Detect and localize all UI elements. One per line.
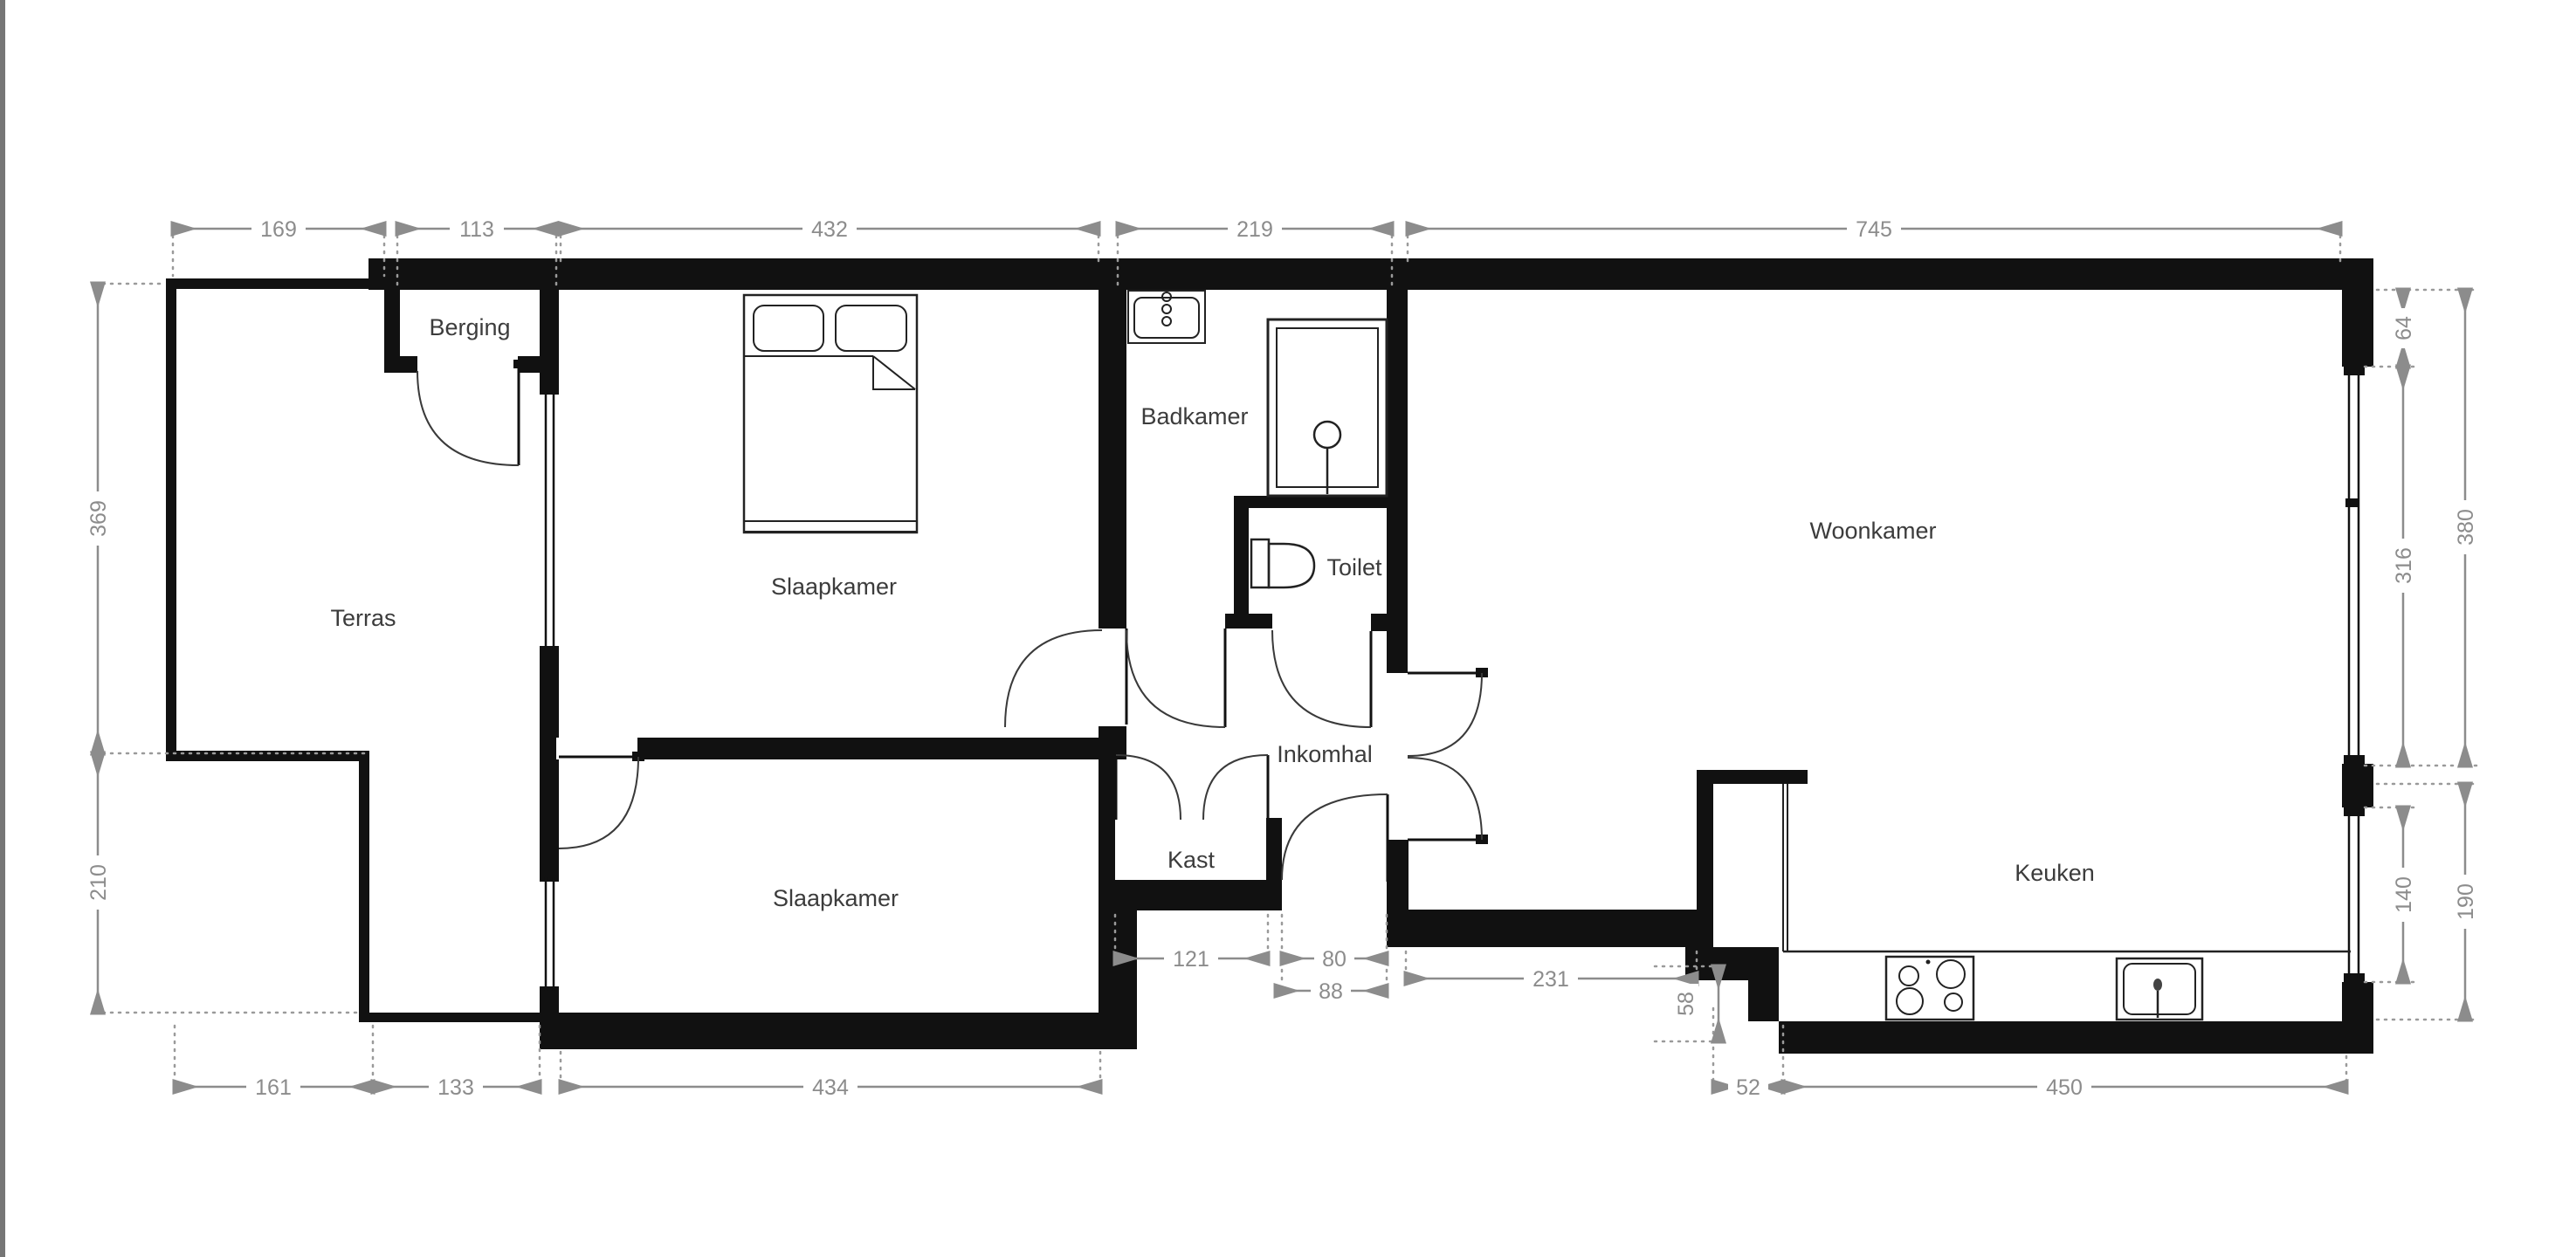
dim-berging-width: 113: [397, 216, 556, 242]
sink-tap: [2153, 979, 2162, 991]
wall: [540, 1013, 1118, 1049]
wash-basin-icon: [1128, 291, 1205, 343]
wall: [1685, 947, 1779, 980]
wall: [540, 759, 559, 873]
window-frame-cap: [540, 986, 559, 995]
wall: [400, 356, 417, 373]
kitchen-sink-icon: [2117, 958, 2202, 1020]
toilet-tank: [1251, 539, 1269, 587]
dimension-value: 745: [1856, 217, 1892, 242]
window-frame-cap: [2344, 367, 2365, 375]
bed-icon: [744, 295, 917, 532]
wall: [637, 738, 1102, 759]
window-frame-cap: [2344, 973, 2365, 982]
closet-door-swing-arc: [1203, 755, 1268, 820]
door-swing-arc: [417, 371, 519, 465]
dim-terras-height: 369: [85, 284, 111, 753]
dim-front-door-outer: 88: [1276, 978, 1387, 1004]
wall: [359, 1013, 542, 1022]
room-label-woonkamer: Woonkamer: [1809, 518, 1936, 544]
wall: [384, 290, 400, 373]
toilet-bowl: [1269, 544, 1314, 587]
window-frame-cap: [540, 646, 559, 655]
dim-keuken-window: 140: [2390, 807, 2416, 982]
dimension-value: 190: [2454, 883, 2478, 920]
burner: [1937, 960, 1965, 988]
wall: [2342, 764, 2373, 807]
wall: [166, 278, 368, 289]
wall: [1234, 508, 1249, 614]
wall: [166, 278, 176, 761]
wall: [1225, 614, 1272, 628]
wall: [1234, 496, 1408, 508]
closet-door-swing-arc: [1116, 755, 1181, 820]
dim-terras-width: 169: [173, 216, 384, 242]
dim-front-door-clear: 80: [1282, 945, 1387, 972]
pillow: [836, 306, 906, 351]
door-swing-arc: [1005, 630, 1102, 727]
dimension-value: 316: [2392, 547, 2416, 584]
cooktop-icon: [1886, 957, 1973, 1020]
wall: [1387, 258, 1408, 673]
door-swing-arc: [559, 757, 638, 848]
cooktop-knob: [1926, 960, 1931, 965]
room-label-kast: Kast: [1167, 847, 1216, 873]
wall: [1115, 880, 1268, 910]
dimension-value: 169: [260, 217, 297, 242]
door-swing-arc: [1126, 630, 1225, 727]
dimension-value: 140: [2392, 876, 2416, 913]
wall: [1697, 770, 1713, 947]
dim-bottom-left-a: 161: [175, 1074, 373, 1100]
floor-plan-drawing: 169 113 432 219 745 369: [0, 0, 2576, 1257]
dimension-value: 380: [2454, 509, 2478, 546]
dim-woonkamer-window: 316: [2390, 367, 2416, 766]
room-label-slaapkamer-top: Slaapkamer: [771, 574, 897, 600]
dim-bottom-left-b: 133: [373, 1074, 540, 1100]
dimension-value: 432: [811, 217, 848, 242]
room-label-slaapkamer-bottom: Slaapkamer: [773, 885, 899, 911]
dim-window-offset: 64: [2390, 290, 2416, 367]
dim-slaapkamer-top-width: 432: [561, 216, 1099, 242]
dimension-value: 58: [1674, 992, 1698, 1016]
wall: [1713, 770, 1808, 784]
bed-foot-line: [744, 521, 917, 532]
dim-woonkamer-width: 745: [1408, 216, 2340, 242]
blanket-fold: [744, 356, 915, 389]
window-edge-strip: [0, 0, 5, 1257]
front-door-swing-arc: [1282, 794, 1388, 880]
dimension-value: 88: [1319, 979, 1343, 1004]
shower-icon: [1268, 319, 1387, 496]
pillow: [754, 306, 823, 351]
dim-keuken-passage: 52: [1713, 1074, 1783, 1100]
wall: [540, 995, 559, 1013]
dimension-value: 434: [812, 1075, 849, 1100]
wall: [1266, 818, 1282, 910]
burner: [1899, 966, 1918, 986]
room-label-toilet: Toilet: [1326, 554, 1382, 580]
dimension-value: 161: [255, 1075, 292, 1100]
dim-kast-width: 121: [1115, 945, 1268, 972]
window-frame-cap: [540, 386, 559, 395]
wall: [1402, 910, 1713, 947]
burner: [1897, 988, 1923, 1014]
wall: [1099, 759, 1115, 1049]
wall: [540, 738, 556, 759]
wall: [1115, 910, 1137, 1049]
dimension-value: 219: [1236, 217, 1273, 242]
bed-frame: [744, 295, 917, 532]
wall: [2342, 982, 2373, 1054]
floor-plan-page: 169 113 432 219 745 369: [0, 0, 2576, 1257]
burner: [1945, 993, 1962, 1011]
dimension-value: 121: [1173, 947, 1209, 972]
dimension-value: 64: [2392, 316, 2416, 340]
wall: [1099, 290, 1126, 628]
double-door-swing-arc: [1408, 673, 1482, 756]
room-label-terras: Terras: [330, 605, 396, 631]
dimension-value: 369: [86, 500, 111, 537]
dimension-value: 52: [1736, 1075, 1760, 1100]
dimension-value: 231: [1533, 967, 1569, 992]
room-label-inkomhal: Inkomhal: [1277, 741, 1373, 767]
wall: [1748, 980, 1779, 1021]
dimension-value: 133: [437, 1075, 474, 1100]
dimension-value: 210: [86, 864, 111, 901]
wall: [1387, 840, 1409, 910]
dim-hal-south-wall: 231: [1406, 965, 1697, 992]
dimension-value: 113: [459, 217, 494, 242]
dimension-value: 450: [2046, 1075, 2083, 1100]
room-label-keuken: Keuken: [2015, 860, 2095, 886]
room-label-badkamer: Badkamer: [1140, 403, 1248, 429]
toilet-icon: [1251, 539, 1314, 587]
window-frame-cap: [2344, 755, 2365, 764]
window-frame-cap: [2344, 807, 2365, 816]
dim-keuken-height: 190: [2452, 784, 2478, 1020]
dim-badkamer-width: 219: [1118, 216, 1392, 242]
dim-counter-width: 450: [1783, 1074, 2346, 1100]
dim-woonkamer-height: 380: [2452, 290, 2478, 766]
room-label-berging: Berging: [429, 314, 510, 340]
dim-lower-left-height: 210: [85, 753, 111, 1013]
wall: [2342, 258, 2373, 367]
window-mullion: [2345, 498, 2359, 507]
basin-tap: [1162, 305, 1171, 313]
wall: [540, 655, 559, 738]
wall: [1779, 1021, 2373, 1054]
dim-slaapkamer-bottom-width: 434: [561, 1074, 1100, 1100]
dimension-value: 80: [1322, 947, 1347, 972]
wall: [540, 290, 559, 386]
double-door-swing-arc: [1408, 758, 1482, 840]
wall: [359, 751, 369, 1022]
wall: [368, 258, 2373, 290]
door-swing-arc: [1272, 630, 1371, 727]
room-labels: Terras Berging Slaapkamer Badkamer Toile…: [330, 314, 2094, 911]
basin-tap: [1162, 317, 1171, 326]
window-frame-cap: [540, 873, 559, 882]
